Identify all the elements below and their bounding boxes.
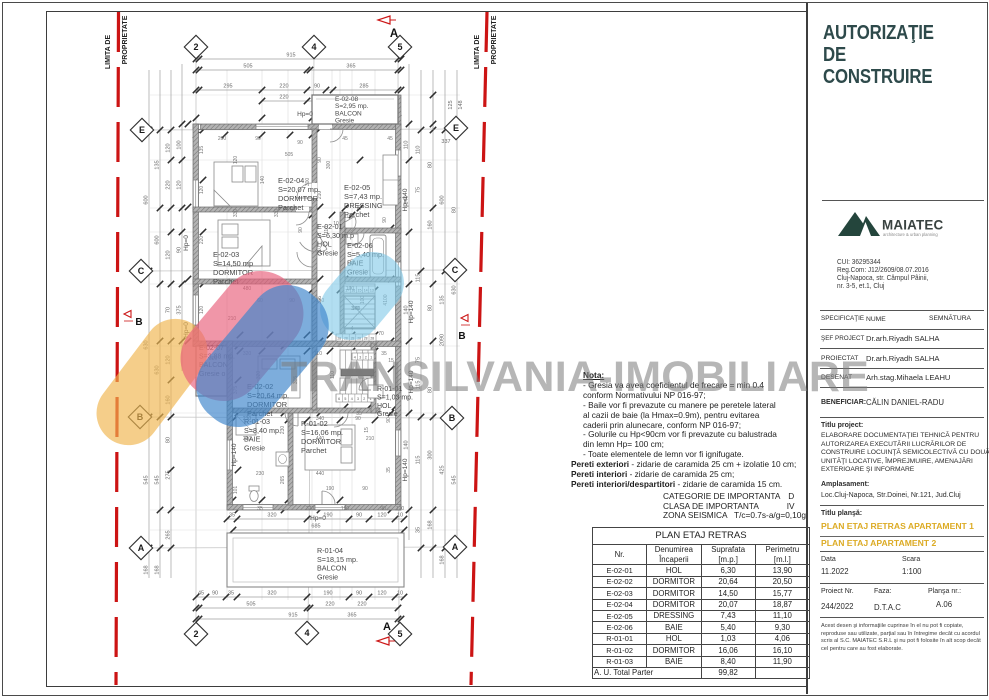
svg-text:S=7,43 mp.: S=7,43 mp.: [344, 192, 382, 201]
svg-text:28: 28: [344, 337, 348, 341]
svg-text:101: 101: [233, 486, 239, 495]
svg-text:210: 210: [228, 316, 237, 322]
svg-text:35: 35: [372, 343, 378, 349]
svg-text:35: 35: [229, 513, 235, 519]
svg-text:70: 70: [166, 307, 172, 313]
svg-text:305: 305: [293, 376, 299, 385]
svg-text:120: 120: [199, 186, 205, 195]
svg-text:300: 300: [305, 178, 311, 187]
svg-text:440: 440: [316, 471, 325, 477]
svg-text:PROPRIETATE: PROPRIETATE: [491, 15, 498, 64]
svg-text:Parchet: Parchet: [213, 277, 238, 286]
svg-text:28: 28: [351, 337, 355, 341]
svg-text:80: 80: [350, 259, 356, 265]
svg-text:220: 220: [325, 602, 334, 608]
svg-text:425: 425: [440, 465, 446, 474]
svg-text:80: 80: [166, 437, 172, 443]
svg-text:Gresie: Gresie: [347, 267, 368, 276]
svg-text:340: 340: [316, 416, 325, 422]
svg-text:230: 230: [280, 426, 286, 435]
svg-text:R-01-04: R-01-04: [317, 546, 343, 555]
svg-text:90: 90: [177, 247, 183, 253]
svg-text:S=20,07 mp.: S=20,07 mp.: [278, 185, 320, 194]
svg-text:110: 110: [404, 141, 410, 150]
svg-text:306: 306: [209, 356, 218, 362]
svg-text:148: 148: [458, 100, 464, 109]
svg-text:35: 35: [257, 506, 263, 512]
svg-text:R-01-01: R-01-01: [377, 386, 402, 393]
svg-text:135: 135: [199, 146, 205, 155]
svg-text:S=2,95 mp.: S=2,95 mp.: [335, 103, 369, 110]
svg-text:265: 265: [166, 530, 172, 539]
svg-text:45: 45: [198, 591, 204, 597]
svg-text:300: 300: [428, 450, 434, 459]
svg-text:120: 120: [396, 506, 405, 512]
svg-text:Parchet: Parchet: [301, 446, 326, 455]
svg-text:75: 75: [416, 357, 422, 363]
svg-text:80: 80: [428, 162, 434, 168]
svg-text:220: 220: [166, 180, 172, 189]
svg-text:90: 90: [298, 227, 304, 233]
svg-text:PROPRIETATE: PROPRIETATE: [122, 15, 129, 64]
svg-text:275: 275: [166, 470, 172, 479]
svg-text:E: E: [139, 125, 145, 135]
svg-text:160: 160: [166, 395, 172, 404]
svg-text:168: 168: [144, 565, 150, 574]
svg-text:3: 3: [357, 397, 359, 401]
svg-text:915: 915: [288, 613, 297, 619]
svg-text:120: 120: [199, 306, 205, 315]
svg-text:90: 90: [356, 513, 362, 519]
svg-text:5: 5: [344, 397, 346, 401]
svg-text:365: 365: [347, 613, 356, 619]
svg-text:115: 115: [416, 274, 422, 283]
svg-text:80: 80: [428, 305, 434, 311]
svg-text:505: 505: [285, 152, 294, 158]
svg-text:S=18,15 mp.: S=18,15 mp.: [317, 555, 358, 564]
svg-text:S=1,03 mp.: S=1,03 mp.: [377, 394, 413, 401]
svg-text:2: 2: [363, 397, 365, 401]
svg-text:Hp=140: Hp=140: [231, 443, 238, 466]
svg-text:330: 330: [274, 209, 280, 218]
svg-text:80: 80: [452, 207, 458, 213]
svg-text:LIMITA DE: LIMITA DE: [474, 35, 481, 70]
svg-text:685: 685: [311, 524, 320, 530]
svg-text:320: 320: [243, 351, 252, 357]
svg-text:4: 4: [351, 326, 354, 332]
svg-text:120: 120: [177, 180, 183, 189]
svg-text:S=6,30 m.p: S=6,30 m.p: [317, 231, 354, 240]
svg-text:2: 2: [193, 629, 198, 639]
svg-text:BALCON: BALCON: [317, 564, 347, 573]
svg-text:200: 200: [218, 136, 227, 142]
svg-text:15: 15: [388, 358, 394, 364]
svg-text:HOL: HOL: [377, 403, 392, 410]
svg-text:110: 110: [344, 214, 352, 220]
svg-text:265: 265: [280, 476, 286, 485]
svg-text:75: 75: [416, 187, 422, 193]
svg-text:168: 168: [440, 555, 446, 564]
svg-text:220: 220: [199, 236, 205, 245]
svg-text:BALCON: BALCON: [335, 110, 362, 117]
svg-text:160: 160: [428, 220, 434, 229]
svg-text:35: 35: [356, 411, 362, 417]
svg-text:70: 70: [378, 331, 384, 337]
svg-text:135: 135: [440, 295, 446, 304]
svg-text:10: 10: [333, 221, 339, 227]
svg-text:28: 28: [370, 337, 374, 341]
svg-text:6: 6: [338, 397, 340, 401]
svg-text:120: 120: [233, 156, 239, 165]
svg-text:10: 10: [397, 513, 403, 519]
svg-text:168: 168: [428, 520, 434, 529]
svg-text:2: 2: [193, 42, 198, 52]
svg-text:Gresie: Gresie: [377, 411, 398, 418]
svg-text:545: 545: [452, 475, 458, 484]
svg-text:80: 80: [428, 387, 434, 393]
svg-text:330: 330: [233, 209, 239, 218]
svg-text:5: 5: [397, 629, 402, 639]
svg-text:90: 90: [382, 217, 388, 223]
svg-text:295: 295: [223, 84, 232, 90]
svg-text:A: A: [390, 28, 398, 40]
svg-text:10: 10: [397, 591, 403, 597]
svg-text:DORMITOR: DORMITOR: [247, 400, 287, 409]
svg-text:35: 35: [337, 343, 343, 349]
svg-text:45: 45: [342, 136, 348, 142]
svg-text:90: 90: [317, 157, 323, 163]
svg-text:135: 135: [155, 160, 161, 169]
svg-text:480: 480: [243, 286, 252, 292]
svg-text:E-02-05: E-02-05: [344, 183, 370, 192]
svg-text:100: 100: [346, 286, 355, 292]
svg-text:B: B: [458, 331, 465, 342]
svg-text:B: B: [135, 317, 142, 328]
svg-text:365: 365: [346, 64, 355, 70]
svg-text:Gresie o: Gresie o: [199, 371, 226, 378]
svg-text:110: 110: [416, 146, 422, 155]
svg-text:A: A: [452, 542, 459, 552]
svg-text:15: 15: [358, 289, 362, 293]
svg-text:90: 90: [386, 417, 392, 423]
svg-text:375: 375: [233, 386, 239, 395]
svg-text:Gresie: Gresie: [244, 443, 265, 452]
svg-text:E: E: [453, 123, 459, 133]
svg-text:E-02-06: E-02-06: [347, 241, 373, 250]
svg-text:120: 120: [166, 250, 172, 259]
svg-text:Hp=0: Hp=0: [310, 515, 326, 522]
svg-text:125: 125: [448, 100, 454, 109]
svg-text:Hp=0: Hp=0: [183, 235, 190, 251]
svg-text:545: 545: [144, 475, 150, 484]
svg-text:28: 28: [337, 337, 341, 341]
svg-text:Hp=140: Hp=140: [408, 370, 415, 393]
svg-text:4: 4: [354, 356, 356, 360]
svg-text:190: 190: [323, 591, 332, 597]
svg-text:4: 4: [311, 42, 316, 52]
svg-text:90: 90: [255, 136, 261, 142]
svg-text:28: 28: [364, 337, 368, 341]
svg-text:505: 505: [243, 64, 252, 70]
svg-text:190: 190: [326, 486, 335, 492]
svg-text:220: 220: [279, 84, 288, 90]
svg-text:Hp=0: Hp=0: [183, 322, 190, 338]
svg-text:120: 120: [377, 513, 386, 519]
svg-text:210: 210: [317, 191, 323, 200]
svg-text:1: 1: [370, 356, 372, 360]
svg-text:115: 115: [416, 381, 422, 390]
svg-text:DORMITOR: DORMITOR: [213, 268, 253, 277]
svg-text:A: A: [383, 621, 391, 633]
svg-text:230: 230: [243, 416, 252, 422]
svg-text:305: 305: [317, 296, 323, 305]
svg-text:B: B: [449, 413, 456, 423]
svg-text:230: 230: [243, 436, 252, 442]
svg-text:2090: 2090: [440, 334, 446, 346]
svg-text:140: 140: [260, 176, 266, 185]
svg-text:architecture & urban planning: architecture & urban planning: [883, 232, 938, 237]
svg-text:Hp=140: Hp=140: [402, 188, 409, 211]
svg-text:E-02-07: E-02-07: [199, 345, 224, 352]
svg-text:LIMITA DE: LIMITA DE: [105, 35, 112, 70]
svg-text:4100: 4100: [383, 294, 389, 305]
svg-text:S=20,64 mp.: S=20,64 mp.: [247, 391, 289, 400]
svg-text:285: 285: [359, 84, 368, 90]
svg-text:110: 110: [330, 371, 336, 379]
svg-text:120: 120: [166, 143, 172, 152]
svg-text:S=5,40 mp.: S=5,40 mp.: [347, 250, 384, 259]
svg-text:15: 15: [364, 427, 370, 433]
svg-text:35: 35: [416, 527, 422, 533]
svg-text:Parchet: Parchet: [278, 203, 303, 212]
svg-text:28: 28: [357, 337, 361, 341]
svg-text:35: 35: [381, 351, 387, 357]
svg-text:B: B: [137, 412, 144, 422]
svg-text:BALCON: BALCON: [199, 362, 228, 369]
svg-text:210: 210: [366, 436, 375, 442]
svg-text:600: 600: [144, 195, 150, 204]
svg-text:140: 140: [404, 440, 410, 449]
svg-text:168: 168: [155, 565, 161, 574]
svg-text:C: C: [452, 265, 459, 275]
svg-text:90: 90: [297, 140, 303, 146]
svg-text:90: 90: [380, 506, 386, 512]
svg-text:3: 3: [359, 356, 361, 360]
svg-text:Hp=140: Hp=140: [408, 300, 415, 323]
svg-text:90: 90: [289, 298, 295, 304]
svg-text:120: 120: [166, 355, 172, 364]
svg-text:220: 220: [279, 95, 288, 101]
svg-text:440: 440: [316, 436, 325, 442]
svg-text:13: 13: [370, 289, 374, 293]
svg-text:320: 320: [267, 591, 276, 597]
svg-text:90: 90: [212, 591, 218, 597]
svg-text:90: 90: [362, 486, 368, 492]
svg-text:100: 100: [177, 140, 183, 149]
svg-text:S=14,50 mp: S=14,50 mp: [213, 259, 253, 268]
svg-text:Gresie: Gresie: [317, 572, 338, 581]
svg-text:35: 35: [228, 591, 234, 597]
svg-text:Hp=140: Hp=140: [402, 458, 409, 481]
svg-text:630: 630: [155, 365, 161, 374]
svg-text:35: 35: [386, 467, 392, 473]
svg-text:75: 75: [357, 205, 363, 211]
svg-text:MAIATEC: MAIATEC: [882, 218, 944, 233]
svg-text:220: 220: [357, 602, 366, 608]
svg-text:E-02-08: E-02-08: [335, 96, 359, 103]
svg-text:600: 600: [440, 195, 446, 204]
svg-text:2: 2: [365, 356, 367, 360]
svg-text:Gresie: Gresie: [335, 118, 355, 125]
svg-text:E-02-04: E-02-04: [278, 176, 304, 185]
svg-text:375: 375: [177, 305, 183, 314]
svg-text:320: 320: [256, 371, 262, 380]
svg-text:90: 90: [314, 84, 320, 90]
svg-text:S=8,40 mp.: S=8,40 mp.: [244, 426, 281, 435]
svg-text:190: 190: [341, 506, 350, 512]
svg-text:115: 115: [416, 456, 422, 465]
svg-text:Hp=0: Hp=0: [297, 111, 313, 118]
svg-text:230: 230: [256, 471, 265, 477]
svg-text:110: 110: [317, 246, 323, 254]
svg-text:45: 45: [387, 136, 393, 142]
svg-text:320: 320: [267, 513, 276, 519]
svg-text:5: 5: [397, 42, 402, 52]
svg-text:110: 110: [314, 351, 322, 357]
svg-text:300: 300: [326, 161, 332, 170]
svg-text:60: 60: [257, 298, 263, 304]
svg-text:320: 320: [306, 506, 315, 512]
svg-text:4: 4: [351, 397, 353, 401]
svg-text:100: 100: [360, 296, 366, 305]
svg-text:600: 600: [155, 235, 161, 244]
svg-text:630: 630: [144, 340, 150, 349]
svg-text:340: 340: [351, 306, 360, 312]
svg-text:14: 14: [364, 289, 368, 293]
svg-text:E-02-03: E-02-03: [213, 250, 239, 259]
svg-text:4: 4: [304, 628, 309, 638]
svg-text:DORMITOR: DORMITOR: [278, 194, 318, 203]
svg-text:C: C: [138, 266, 145, 276]
svg-text:505: 505: [246, 602, 255, 608]
svg-text:110: 110: [324, 226, 330, 234]
svg-text:337: 337: [441, 139, 450, 145]
svg-text:E-02-02: E-02-02: [247, 382, 273, 391]
svg-text:DRESSING: DRESSING: [344, 201, 383, 210]
svg-text:90: 90: [356, 591, 362, 597]
svg-text:630: 630: [452, 285, 458, 294]
svg-text:120: 120: [377, 591, 386, 597]
svg-text:915: 915: [286, 53, 295, 59]
svg-text:545: 545: [155, 475, 161, 484]
svg-text:A: A: [138, 543, 145, 553]
